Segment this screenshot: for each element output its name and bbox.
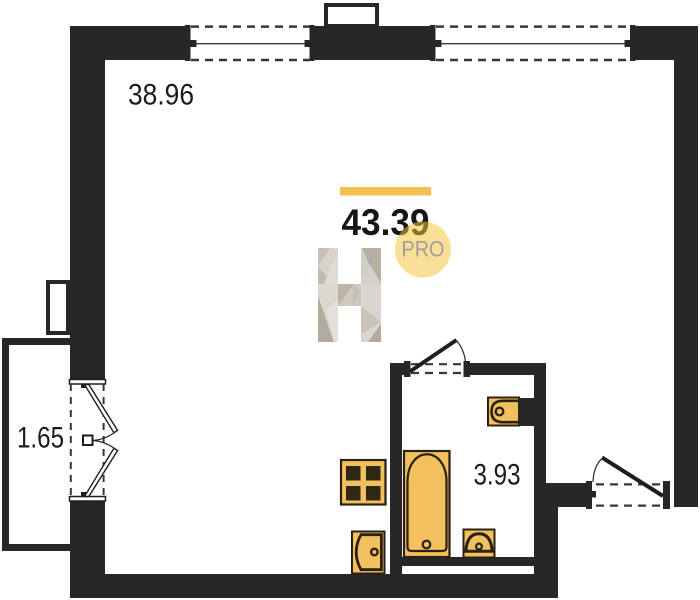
svg-text:1.65: 1.65 [17,421,64,454]
svg-text:38.96: 38.96 [128,78,194,111]
svg-text:PRO: PRO [402,237,445,262]
svg-text:3.93: 3.93 [474,458,521,491]
